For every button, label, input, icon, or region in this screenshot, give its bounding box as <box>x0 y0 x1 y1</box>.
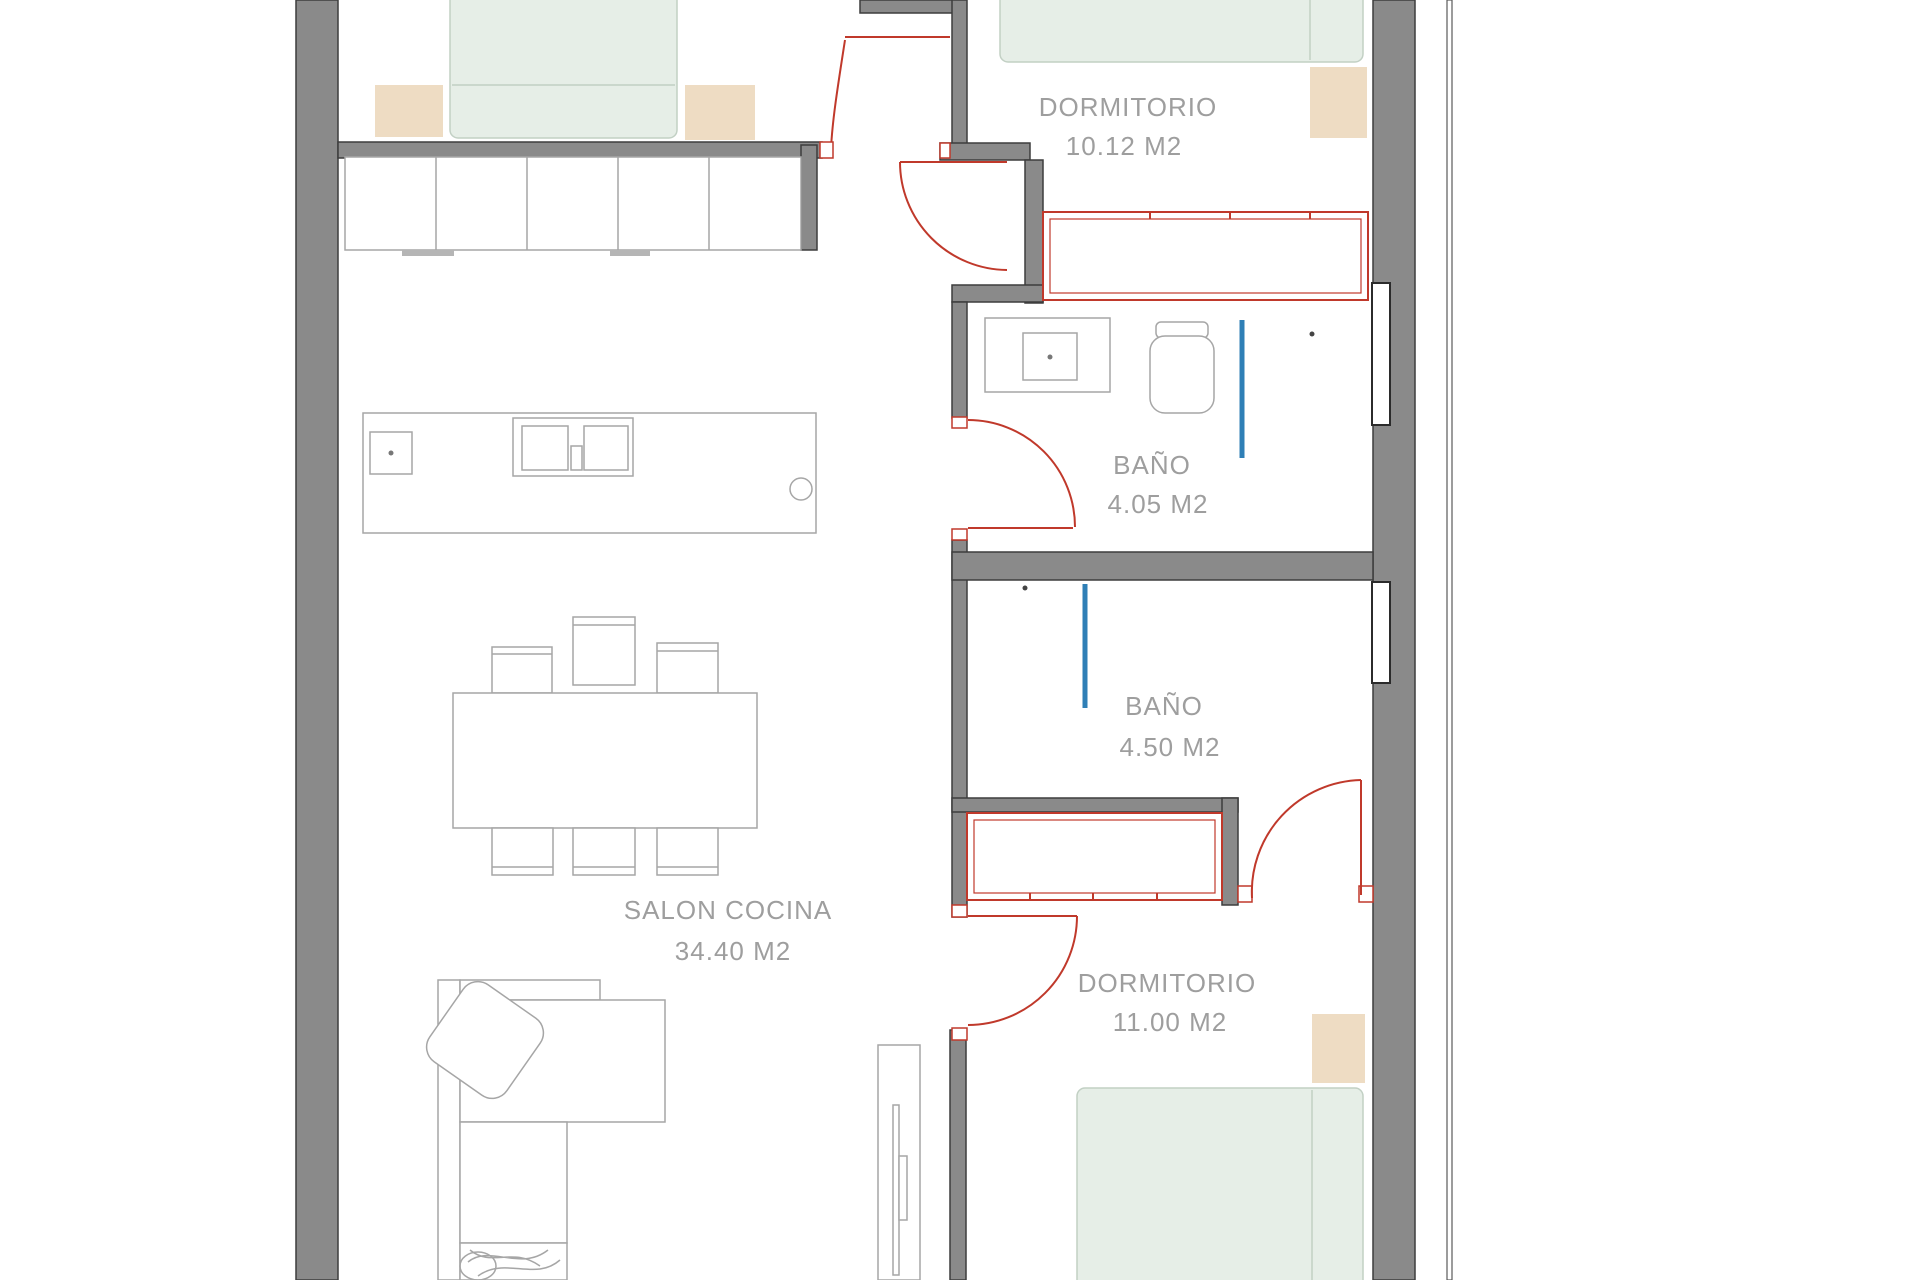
door-arc-bano1 <box>968 420 1075 527</box>
tv-screen <box>893 1105 899 1275</box>
bedroom1-furniture <box>345 0 801 256</box>
bed-dormitorio1 <box>1000 0 1363 62</box>
wall-exterior-left <box>296 0 338 1280</box>
sofa-tv-furniture <box>420 975 920 1280</box>
door-arc-dormitorio1 <box>900 162 1007 270</box>
dining-chair <box>657 828 718 875</box>
room-area-bano2: 4.50 M2 <box>1120 732 1221 762</box>
wardrobe-handle <box>610 250 650 256</box>
window-bano1 <box>1372 283 1390 425</box>
sofa-chaise-end <box>460 1243 567 1280</box>
bed-dormitorio2 <box>1077 1088 1363 1280</box>
wall-top-vestibule <box>860 0 957 13</box>
nightstand-right-bedroom1 <box>685 85 755 140</box>
wardrobe-bedroom1 <box>345 157 801 250</box>
nightstand-dormitorio1 <box>1310 67 1367 138</box>
dining-furniture <box>453 617 757 875</box>
room-label-salon-cocina: SALON COCINA <box>624 895 833 925</box>
tv-unit-detail <box>899 1156 907 1220</box>
toilet-bowl-bano1 <box>1150 336 1214 413</box>
wall-stub-closet1 <box>1025 160 1043 303</box>
door-arc-nook <box>1252 780 1361 898</box>
wall-stub-dormitorio2-nook <box>1222 798 1238 905</box>
room-area-bano1: 4.05 M2 <box>1108 489 1209 519</box>
room-label-bano2: BAÑO <box>1125 691 1203 721</box>
wall-bano2-south <box>952 798 1238 812</box>
sofa-chaise <box>460 1122 567 1243</box>
bano1-fixtures <box>985 318 1315 458</box>
wall-bano1-north <box>952 285 1043 302</box>
dining-chair <box>573 828 635 875</box>
room-label-dormitorio1: DORMITORIO <box>1039 92 1218 122</box>
door-jamb <box>952 1028 967 1040</box>
kitchen-sink-left-basin <box>522 426 568 470</box>
wall-bano1-west-upper <box>952 302 967 418</box>
dining-table <box>453 693 757 828</box>
dormitorio2-furniture <box>967 813 1365 1280</box>
wall-dormitorio1-south-west <box>940 143 1030 160</box>
wall-corridor-mid <box>952 540 967 917</box>
kitchen-sink-tap <box>571 446 582 470</box>
dormitorio1-furniture <box>1000 0 1368 300</box>
bed-bedroom1 <box>450 0 677 138</box>
room-label-bano1: BAÑO <box>1113 450 1191 480</box>
wall-corridor-top <box>952 0 967 148</box>
room-area-dormitorio1: 10.12 M2 <box>1066 131 1182 161</box>
door-jamb <box>952 905 967 917</box>
kitchen-hob-dot <box>389 451 394 456</box>
floor-plan-canvas: DORMITORIO 10.12 M2 BAÑO 4.05 M2 BAÑO 4.… <box>0 0 1920 1280</box>
door-jamb <box>952 417 967 428</box>
shower-drain-bano2 <box>1023 586 1028 591</box>
kitchen-furniture <box>363 413 816 533</box>
room-label-dormitorio2: DORMITORIO <box>1078 968 1257 998</box>
door-arc-dormitorio2 <box>968 916 1077 1025</box>
nightstand-left-bedroom1 <box>375 85 443 137</box>
bano2-fixtures <box>1023 584 1086 708</box>
wall-bano1-south <box>952 552 1373 580</box>
door-arc-vestibule <box>831 40 845 150</box>
dining-chair <box>573 617 635 685</box>
wardrobe-handle <box>402 250 454 256</box>
dining-chair <box>492 828 553 875</box>
wall-exterior-boundary-line <box>1447 0 1452 1280</box>
window-bano2 <box>1372 582 1390 683</box>
wall-bedroom1-south <box>338 142 822 158</box>
room-area-dormitorio2: 11.00 M2 <box>1113 1007 1227 1037</box>
kitchen-sink-right-basin <box>584 426 628 470</box>
door-jamb <box>1238 886 1252 902</box>
floor-plan-drawing: DORMITORIO 10.12 M2 BAÑO 4.05 M2 BAÑO 4.… <box>0 0 1920 1280</box>
door-jamb <box>952 529 967 540</box>
door-jamb <box>820 142 833 158</box>
built-in-closet-dormitorio1 <box>1043 212 1368 300</box>
room-area-salon-cocina: 34.40 M2 <box>675 936 791 966</box>
sink-drain-bano1 <box>1048 355 1053 360</box>
shower-drain-bano1 <box>1310 332 1315 337</box>
wall-bedroom1-east <box>801 145 817 250</box>
wall-corridor-bottom <box>950 1030 966 1280</box>
nightstand-dormitorio2 <box>1312 1014 1365 1083</box>
built-in-closet-dormitorio2 <box>967 813 1222 900</box>
door-jamb <box>940 143 950 158</box>
